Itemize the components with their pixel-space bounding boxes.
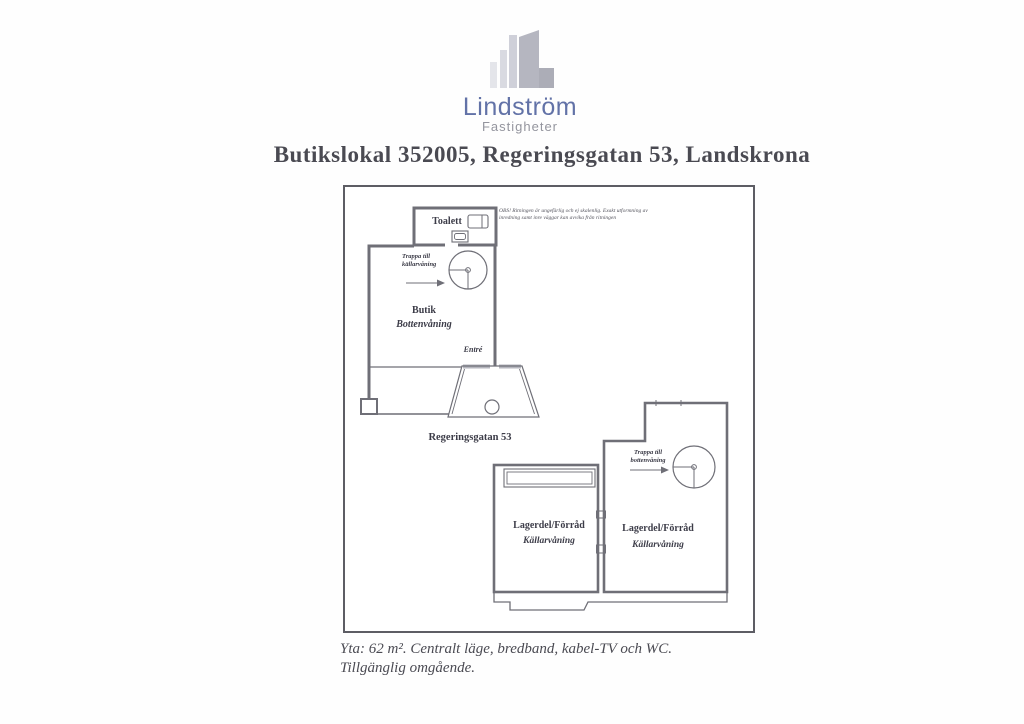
toilet-room-label: Toalett — [416, 216, 478, 227]
plan-disclaimer-line1: OBS! Ritningen är ungefärlig och ej skal… — [499, 208, 648, 214]
basement-spiral-stairs — [673, 446, 715, 488]
entrance-vestibule — [448, 366, 539, 417]
property-description-line1: Yta: 62 m². Centralt läge, bredband, kab… — [340, 641, 672, 657]
document-page: Lindström Fastigheter Butikslokal 352005… — [0, 0, 1024, 724]
property-description-line2: Tillgänglig omgående. — [340, 660, 475, 676]
left-storage-room-label: Lagerdel/Förråd — [498, 520, 600, 531]
right-storage-level-label: Källarvåning — [607, 540, 709, 550]
plan-disclaimer: OBS! Ritningen är ungefärlig och ej skal… — [499, 208, 669, 221]
stairs-to-basement-label: Trappa till källarvåning — [402, 253, 452, 269]
stairs-to-ground-floor-line1: Trappa till — [634, 449, 662, 456]
ground-floor-stairs-arrow — [406, 280, 445, 287]
stairs-to-ground-floor-line2: bottenvåning — [630, 457, 665, 464]
property-description: Yta: 62 m². Centralt läge, bredband, kab… — [340, 640, 760, 678]
plan-disclaimer-line2: inredning samt inre väggar kan avvika fr… — [499, 215, 616, 221]
ground-floor-level-label: Bottenvåning — [384, 319, 464, 330]
shop-room-label: Butik — [394, 305, 454, 316]
street-label: Regeringsgatan 53 — [408, 432, 532, 443]
left-storage-level-label: Källarvåning — [498, 536, 600, 546]
floor-plan-drawing — [0, 0, 1024, 724]
right-storage-room-label: Lagerdel/Förråd — [607, 523, 709, 534]
basement-stairs-arrow — [630, 467, 669, 474]
stairs-to-basement-line1: Trappa till — [402, 253, 430, 260]
ground-floor-spiral-stairs — [449, 251, 487, 289]
stairs-to-basement-line2: källarvåning — [402, 261, 436, 268]
entrance-label: Entré — [453, 345, 493, 354]
stairs-to-ground-floor-label: Trappa till bottenvåning — [624, 449, 672, 465]
